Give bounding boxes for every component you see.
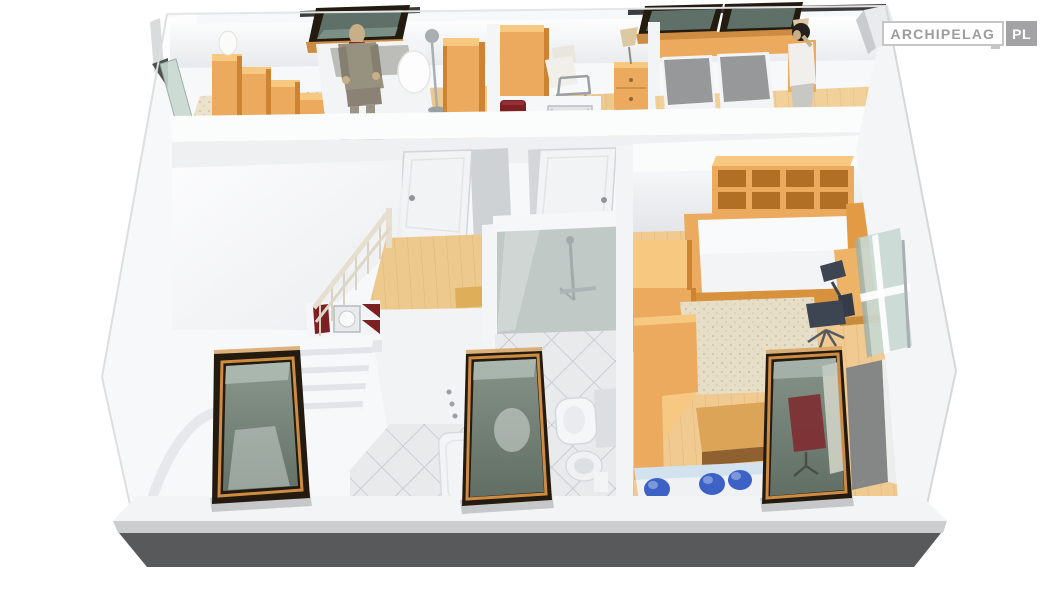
cube-wall-shelf [712,156,856,220]
bathroom-left-wall [482,224,497,342]
shower-glass [497,226,628,336]
drawer-knob [447,390,452,395]
logo-brand-box: ARCHIPELAG [882,21,1005,46]
slab-edge-light [113,521,947,533]
bathroom-right-wall [616,144,633,512]
door-handle [601,197,607,203]
red-tile-right [362,320,380,334]
drawer-knob [450,402,455,407]
door-left-open [398,150,472,244]
drawer-knob [453,414,458,419]
wooden-table [696,402,772,466]
attic-floorplan-render [0,0,1060,590]
shelf-egg-lamp [219,31,237,55]
roof-window-3 [760,346,854,512]
logo-tld-text: PL [1012,26,1031,42]
wardrobe [500,25,549,96]
roof-window-1 [210,346,312,512]
roof-window-2 [460,347,554,514]
slab-dark [119,533,941,567]
door-handle [409,195,415,201]
logo-tld-box: PL [1006,21,1037,46]
red-tile-left [362,304,380,318]
logo-brand-text: ARCHIPELAG [891,26,996,42]
ornate-basin [334,306,360,332]
floorplan-screenshot: ARCHIPELAG PL [0,0,1060,590]
archipelag-logo: ARCHIPELAG PL [882,21,1037,46]
